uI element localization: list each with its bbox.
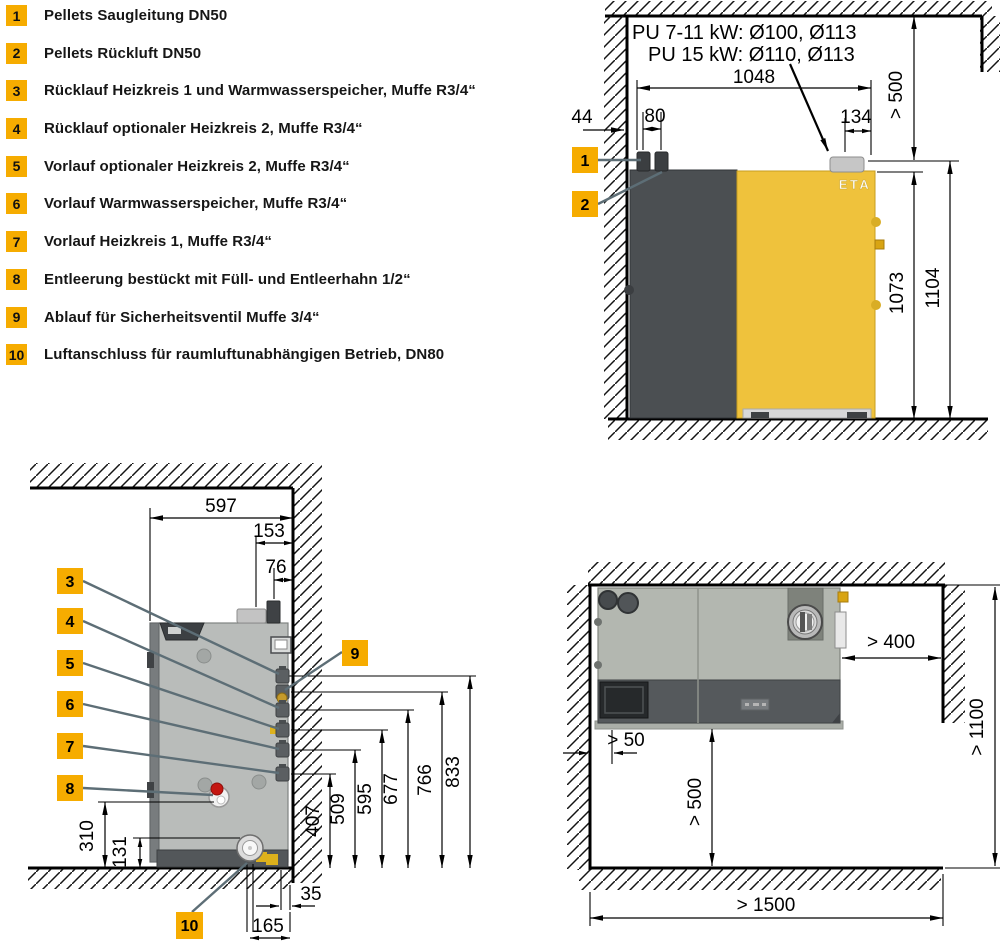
note-leader-arrow <box>790 64 828 151</box>
boiler-foot <box>847 412 867 418</box>
dim-label: 134 <box>840 107 872 128</box>
legend-badge: 7 <box>6 231 27 252</box>
dim-pipe-to-wall-76: 76 <box>265 557 293 599</box>
right-wall-corner <box>980 16 1000 72</box>
legend-badge: 4 <box>6 118 27 139</box>
callout-4: 4 <box>57 608 83 634</box>
dim-label: 44 <box>571 107 593 128</box>
callout-2: 2 <box>572 191 598 217</box>
legend-item: 1Pellets Saugleitung DN50 <box>6 5 476 26</box>
door-hinge <box>871 300 881 310</box>
legend-badge: 10 <box>6 344 27 365</box>
legend-item: 9Ablauf für Sicherheitsventil Muffe 3/4“ <box>6 307 476 328</box>
dim-width-1048: 1048 <box>637 67 871 155</box>
legend-item: 6Vorlauf Warmwasserspeicher, Muffe R3/4“ <box>6 193 476 214</box>
pellet-hopper <box>630 170 737 418</box>
door-hinge <box>594 618 602 626</box>
pellet-pipe-port <box>599 591 617 609</box>
callout-9: 9 <box>342 640 368 666</box>
legend-badge: 2 <box>6 43 27 64</box>
legend-badge: 5 <box>6 156 27 177</box>
legend-label: Pellets Saugleitung DN50 <box>44 7 227 24</box>
dim-label: 595 <box>355 783 376 815</box>
legend-item: 2Pellets Rückluft DN50 <box>6 43 476 64</box>
dim-label: 677 <box>381 773 402 805</box>
callout-8: 8 <box>57 775 83 801</box>
dim-label: > 1500 <box>737 895 796 916</box>
base-yellow-patch <box>266 854 278 865</box>
callout-number: 9 <box>351 646 360 663</box>
callout-3: 3 <box>57 568 83 594</box>
callout-number: 5 <box>66 656 75 673</box>
legend-item: 4Rücklauf optionaler Heizkreis 2, Muffe … <box>6 118 476 139</box>
pellet-pipe-port <box>618 593 638 613</box>
pellet-suction-pipe <box>637 152 650 171</box>
dim-body-height-1073: 1073 <box>887 172 914 419</box>
legend-badge: 8 <box>6 269 27 290</box>
dim-label: > 500 <box>886 71 907 119</box>
callout-10: 10 <box>176 912 203 939</box>
legend-item: 7Vorlauf Heizkreis 1, Muffe R3/4“ <box>6 231 476 252</box>
legend: 1Pellets Saugleitung DN50 2Pellets Rückl… <box>6 5 476 382</box>
boiler-side-view <box>147 601 293 867</box>
boiler-top-view <box>594 588 848 729</box>
bottom-wall <box>579 868 943 890</box>
dim-label: 1073 <box>887 272 908 314</box>
control-panel <box>160 623 204 640</box>
legend-label: Ablauf für Sicherheitsventil Muffe 3/4“ <box>44 309 320 326</box>
installation-drawing-page: 1Pellets Saugleitung DN50 2Pellets Rückl… <box>0 0 1000 946</box>
flue-collar <box>237 609 266 623</box>
callout-5: 5 <box>57 650 83 676</box>
dim-label: 833 <box>443 756 464 788</box>
dim-ceiling-clearance-500: > 500 <box>886 16 914 160</box>
top-view-drawing: > 400 > 50 > 500 > 1100 > 1500 <box>555 545 1000 946</box>
note-line-1: PU 7-11 kW: Ø100, Ø113 <box>632 22 857 44</box>
boiler-front-view: ETA <box>624 152 884 418</box>
legend-label: Luftanschluss für raumluftunabhängigen B… <box>44 346 444 363</box>
legend-label: Pellets Rückluft DN50 <box>44 45 201 62</box>
eta-logo: ETA <box>839 177 872 192</box>
callout-number: 3 <box>66 574 75 591</box>
dim-label: 597 <box>205 496 237 517</box>
left-wall <box>567 585 590 870</box>
door-hinge <box>871 217 881 227</box>
junction-box <box>271 637 291 653</box>
callout-6: 6 <box>57 691 83 717</box>
callout-number: 2 <box>581 197 590 214</box>
boiler-body <box>737 171 875 418</box>
flue-outlet <box>788 605 822 639</box>
legend-item: 10Luftanschluss für raumluftunabhängigen… <box>6 344 476 365</box>
callout-number: 4 <box>66 614 75 631</box>
dim-label: 509 <box>328 793 349 825</box>
dim-label: 407 <box>303 805 324 837</box>
knob <box>198 778 212 792</box>
front-view-drawing: ETA PU 7-11 kW: Ø100, Ø113 PU 15 kW: Ø11… <box>555 0 1000 450</box>
display-slot <box>168 627 181 634</box>
flue-collar <box>830 157 864 172</box>
dim-label: 1048 <box>733 67 775 88</box>
dim-label: > 400 <box>867 632 915 653</box>
dim-label: 131 <box>110 836 131 868</box>
ceiling-wall <box>30 463 322 488</box>
door-hinge <box>147 782 154 798</box>
dim-right-clearance-400: > 400 <box>842 632 941 658</box>
dim-front-clearance-500: > 500 <box>685 729 712 866</box>
dim-flue-offset-134: 134 <box>840 107 872 152</box>
control-buttons <box>741 699 769 710</box>
floor <box>608 419 988 440</box>
legend-badge: 9 <box>6 307 27 328</box>
callout-7: 7 <box>57 733 83 759</box>
vent-knob <box>875 240 884 249</box>
vent-knob <box>838 592 848 602</box>
callout-number: 6 <box>66 697 75 714</box>
legend-label: Rücklauf Heizkreis 1 und Warmwasserspeic… <box>44 82 476 99</box>
dim-label: 80 <box>644 106 665 127</box>
door-hinge <box>147 652 154 668</box>
side-cover <box>835 612 846 648</box>
dim-label: 153 <box>253 521 285 542</box>
dim-label: > 1100 <box>967 698 988 755</box>
callout-number: 10 <box>181 918 199 935</box>
legend-item: 8Entleerung bestückt mit Füll- und Entle… <box>6 269 476 290</box>
callout-number: 8 <box>66 781 75 798</box>
dim-label: 1104 <box>923 267 944 308</box>
legend-label: Rücklauf optionaler Heizkreis 2, Muffe R… <box>44 120 363 137</box>
dim-pipe-spacing-80: 80 <box>643 106 666 150</box>
left-wall <box>604 16 627 419</box>
legend-item: 3Rücklauf Heizkreis 1 und Warmwasserspei… <box>6 80 476 101</box>
knob <box>252 775 266 789</box>
legend-label: Vorlauf Warmwasserspeicher, Muffe R3/4“ <box>44 195 347 212</box>
callout-1: 1 <box>572 147 598 173</box>
callout-number: 7 <box>66 739 75 756</box>
legend-item: 5Vorlauf optionaler Heizkreis 2, Muffe R… <box>6 156 476 177</box>
pellet-pipe <box>267 601 280 623</box>
ash-door <box>600 682 648 718</box>
legend-badge: 1 <box>6 5 27 26</box>
dim-label: > 50 <box>607 730 645 751</box>
dim-label: 35 <box>300 884 321 905</box>
ceiling-wall <box>605 1 992 16</box>
callout-number: 1 <box>581 153 590 170</box>
side-view-drawing: 597 153 76 833 766 677 <box>0 440 500 946</box>
note-line-2: PU 15 kW: Ø110, Ø113 <box>648 44 855 66</box>
legend-label: Vorlauf Heizkreis 1, Muffe R3/4“ <box>44 233 272 250</box>
legend-label: Entleerung bestückt mit Füll- und Entlee… <box>44 271 411 288</box>
hopper-latch <box>624 285 634 295</box>
boiler-foot <box>751 412 769 418</box>
dim-total-height-1104: 1104 <box>923 161 950 419</box>
legend-label: Vorlauf optionaler Heizkreis 2, Muffe R3… <box>44 158 350 175</box>
door-hinge <box>594 661 602 669</box>
dim-label: 76 <box>265 557 286 578</box>
dim-label: 766 <box>415 764 436 796</box>
legend-badge: 3 <box>6 80 27 101</box>
knob <box>197 649 211 663</box>
pellet-return-pipe <box>655 152 668 171</box>
legend-badge: 6 <box>6 193 27 214</box>
top-wall <box>588 562 945 585</box>
dim-label: 310 <box>77 820 98 852</box>
right-wall <box>943 585 965 723</box>
dim-label: 165 <box>252 916 284 937</box>
dim-label: > 500 <box>685 778 706 826</box>
